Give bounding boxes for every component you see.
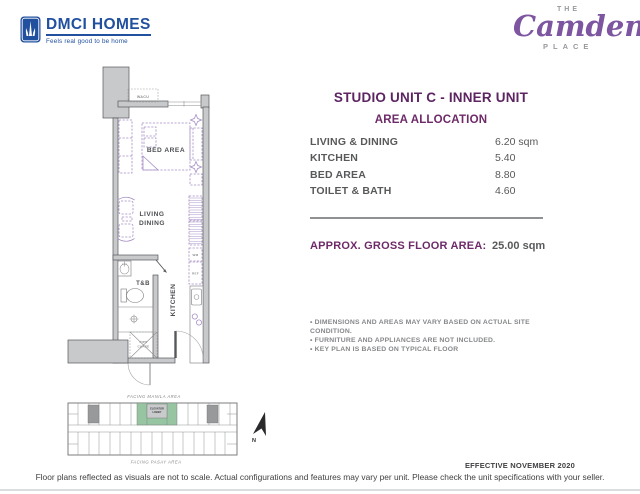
area-label: TOILET & BATH [310, 185, 392, 197]
chair-back [118, 239, 135, 242]
tb-door-arrow [163, 269, 167, 272]
chair [119, 224, 133, 237]
dining-table [122, 217, 132, 221]
shower-drain-cross [130, 315, 139, 324]
kitchen-label: KITCHEN [170, 284, 177, 317]
facing-pasay-label: FACING PASAY AREA [131, 460, 182, 465]
side-table [190, 174, 202, 185]
area-value: 5.40 [495, 152, 515, 164]
area-label: LIVING & DINING [310, 136, 398, 148]
area-row: LIVING & DINING 6.20 sqm [310, 136, 555, 152]
top-right-wall [201, 95, 209, 108]
dmci-name: DMCI HOMES [46, 16, 151, 36]
gross-floor-area-row: APPROX. GROSS FLOOR AREA: 25.00 sqm [310, 240, 555, 252]
dining-label: DINING [139, 220, 165, 227]
table-divider [310, 217, 543, 219]
fan-symbol [191, 115, 202, 126]
chair-back [118, 197, 135, 200]
tb-label: T&B [136, 281, 150, 287]
bed-area-label: BED AREA [147, 147, 185, 154]
north-label: N [252, 438, 256, 444]
stair-core [207, 405, 218, 423]
left-wall [113, 118, 118, 363]
column-wall [103, 67, 129, 118]
camden-logo-place: PLACE [543, 42, 625, 51]
facing-manila-label: FACING MANILA AREA [127, 394, 181, 399]
floor-plan: WACU BED AREA LIVING DINING WM REF KITCH… [55, 60, 230, 400]
bed-fold [143, 156, 158, 170]
area-label: BED AREA [310, 169, 366, 181]
elevator-lobby-label: LOBBY [152, 410, 161, 414]
elevator-lobby-label: ELEVATOR [150, 407, 164, 411]
tb-top-wall [113, 255, 158, 260]
area-value: 4.60 [495, 185, 515, 197]
window [168, 101, 201, 107]
notes: • DIMENSIONS AND AREAS MAY VARY BASED ON… [310, 318, 572, 354]
wardrobe-shelves [119, 138, 132, 156]
wardrobe [119, 120, 132, 173]
kitchen-sink [192, 289, 202, 305]
counter-hatch [189, 196, 202, 220]
fan-symbol [191, 162, 202, 173]
area-table: LIVING & DINING 6.20 sqm KITCHEN 5.40 BE… [310, 136, 555, 202]
pipe-chase-label: CHASE [137, 345, 149, 349]
camden-place-logo: THE Camden PLACE [513, 6, 625, 51]
toilet-bowl [127, 289, 144, 303]
counter-hatch [189, 221, 202, 245]
hall-door-swing [128, 363, 150, 385]
unit-title: STUDIO UNIT C - INNER UNIT [300, 90, 562, 105]
page-bottom-edge [0, 489, 640, 491]
area-row: BED AREA 8.80 [310, 169, 555, 185]
wacu-label: WACU [137, 95, 149, 99]
wm-label: WM [193, 253, 199, 257]
hallway-wall-block [68, 340, 128, 363]
area-allocation-heading: AREA ALLOCATION [300, 114, 562, 126]
pillow [144, 127, 156, 136]
note-item: • DIMENSIONS AND AREAS MAY VARY BASED ON… [310, 318, 572, 336]
area-label: KITCHEN [310, 152, 358, 164]
dmci-logo-icon [20, 16, 41, 43]
pillow [144, 138, 156, 147]
note-item: • FURNITURE AND APPLIANCES ARE NOT INCLU… [310, 336, 572, 345]
desk [190, 128, 202, 160]
living-label: LIVING [140, 211, 165, 218]
effective-date: EFFECTIVE NOVEMBER 2020 [465, 461, 575, 470]
gross-floor-area-label: APPROX. GROSS FLOOR AREA: [310, 240, 486, 252]
area-value: 6.20 sqm [495, 136, 538, 148]
pipe-chase-label: PIPE [139, 340, 147, 344]
toilet-tank [121, 289, 127, 302]
gross-floor-area-value: 25.00 sqm [492, 240, 545, 252]
disclaimer: Floor plans reflected as visuals are not… [0, 472, 640, 482]
stair-core [88, 405, 99, 423]
area-row: TOILET & BATH 4.60 [310, 185, 555, 201]
right-wall [203, 107, 209, 363]
chair [119, 201, 133, 214]
note-item: • KEY PLAN IS BASED ON TYPICAL FLOOR [310, 345, 572, 354]
dmci-logo: DMCI HOMES Feels real good to be home [20, 16, 151, 45]
area-row: KITCHEN 5.40 [310, 152, 555, 168]
key-plan: FACING MANILA AREA ELEVATOR LOBBY FACING… [60, 390, 275, 468]
camden-logo-name: Camden [513, 11, 625, 41]
dmci-tagline: Feels real good to be home [46, 38, 151, 45]
shower-area [118, 307, 153, 332]
ref-label: REF [192, 272, 199, 276]
north-arrow-icon [253, 412, 266, 436]
area-value: 8.80 [495, 169, 515, 181]
